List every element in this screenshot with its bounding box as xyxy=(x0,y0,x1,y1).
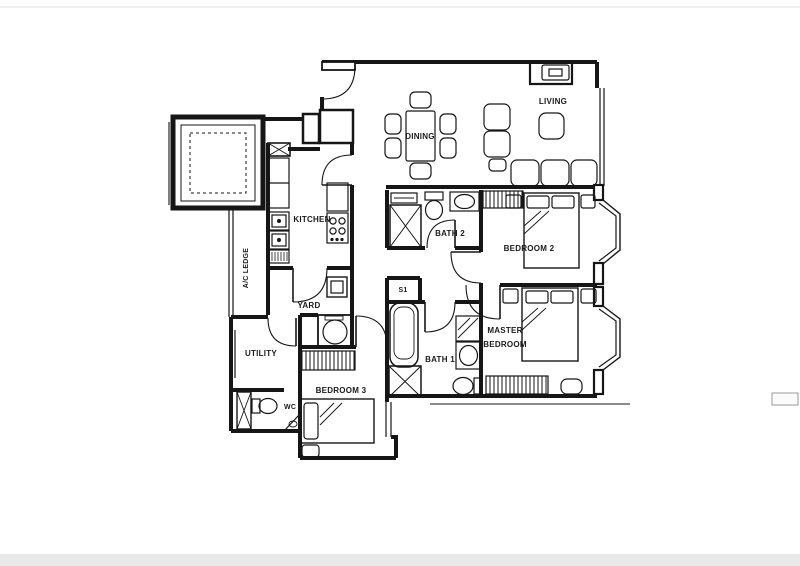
bay-stub xyxy=(594,370,603,394)
bath2-sink xyxy=(450,192,479,211)
shaft-square xyxy=(173,117,263,208)
dining-chair xyxy=(410,92,431,108)
room-labels: LIVING DINING KITCHEN A/C LEDGE YARD UTI… xyxy=(243,97,567,411)
master-wardrobe xyxy=(486,376,548,394)
bath1-vanity xyxy=(456,316,481,341)
living-window xyxy=(600,88,604,186)
bedroom3-furniture xyxy=(300,351,374,457)
water-heater xyxy=(327,277,347,297)
bedroom2-furniture xyxy=(483,191,595,268)
bedroom2-wardrobe xyxy=(483,191,523,208)
bath1-toilet xyxy=(453,378,481,395)
bath2-toilet xyxy=(425,192,443,220)
ac-ledge-edge-lines xyxy=(229,208,233,317)
bedroom3-window xyxy=(386,402,391,437)
entrance-door-leaf xyxy=(322,62,355,70)
entrance-door-arc xyxy=(322,66,355,99)
kitchen-door xyxy=(322,155,352,185)
dish-rack xyxy=(269,250,289,263)
dressing-stool xyxy=(561,379,582,394)
shaft-square-inner xyxy=(181,125,255,201)
bath2-fittings xyxy=(390,192,479,247)
kitchen-fittings xyxy=(268,143,348,263)
bedroom2-bay-window xyxy=(603,200,620,264)
kitchen-sink xyxy=(269,212,289,249)
floor-plan-drawing: LIVING DINING KITCHEN A/C LEDGE YARD UTI… xyxy=(0,0,800,566)
bedroom3-wardrobe xyxy=(300,351,355,370)
tv-console xyxy=(542,65,569,80)
master-label-line2: BEDROOM xyxy=(483,340,527,349)
dining-chair xyxy=(410,163,431,179)
washing-machine xyxy=(318,315,352,348)
ac-ledge-label: A/C LEDGE xyxy=(243,248,250,288)
master-bay-window-inner xyxy=(599,309,616,367)
bedside-table xyxy=(503,289,518,303)
wc-label: WC xyxy=(284,404,296,411)
dining-chair xyxy=(440,138,456,158)
dining-chair xyxy=(440,114,456,134)
shaft-square-dashed xyxy=(190,133,246,193)
bath1-label: BATH 1 xyxy=(425,355,455,364)
master-bay-window xyxy=(603,306,620,370)
bath2-label: BATH 2 xyxy=(435,229,465,238)
fridge xyxy=(327,183,348,211)
dining-chair xyxy=(385,114,401,134)
yard-label: YARD xyxy=(298,301,321,310)
bath1-fittings xyxy=(389,303,481,397)
bath1-shower xyxy=(389,366,421,397)
bedroom3-label: BEDROOM 3 xyxy=(316,386,367,395)
bathtub xyxy=(390,303,418,367)
bay-stub xyxy=(594,263,603,284)
master-bed xyxy=(522,288,578,361)
laundry-rack xyxy=(237,392,251,429)
bedroom2-bed xyxy=(524,193,579,268)
dining-chair xyxy=(385,138,401,158)
scan-artifact-bottom xyxy=(0,554,800,566)
bath1-door xyxy=(425,302,455,332)
outer-walls xyxy=(231,62,597,458)
bedroom2-label: BEDROOM 2 xyxy=(504,244,555,253)
entry-wall-block-2 xyxy=(320,110,353,143)
bath1-sink xyxy=(456,342,481,369)
bath2-shelf xyxy=(391,193,417,203)
entrance-door xyxy=(322,62,355,99)
bedside-table xyxy=(302,445,319,457)
bedroom3-door xyxy=(356,316,387,347)
bedroom2-bay-window-inner xyxy=(599,203,616,261)
utility-door xyxy=(268,318,296,346)
entry-wall-block xyxy=(303,114,319,143)
coffee-table xyxy=(539,113,564,139)
bath2-shower xyxy=(390,205,421,247)
wc-basin xyxy=(285,415,299,430)
dining-label: DINING xyxy=(405,132,435,141)
inner-walls xyxy=(231,143,597,402)
wc-toilet xyxy=(252,399,277,414)
scan-artifact-top xyxy=(0,6,800,8)
store-label: S1 xyxy=(398,287,407,294)
scan-artifact-right xyxy=(772,393,798,405)
bedroom3-bed xyxy=(301,399,374,443)
yard-door xyxy=(293,268,327,302)
floor-plan-page: LIVING DINING KITCHEN A/C LEDGE YARD UTI… xyxy=(0,0,800,566)
service-shaft-icon xyxy=(268,143,290,156)
bedroom2-door xyxy=(451,252,481,283)
utility-label: UTILITY xyxy=(245,349,277,358)
kitchen-label: KITCHEN xyxy=(293,215,330,224)
master-label-line1: MASTER xyxy=(487,326,522,335)
living-label: LIVING xyxy=(539,97,567,106)
